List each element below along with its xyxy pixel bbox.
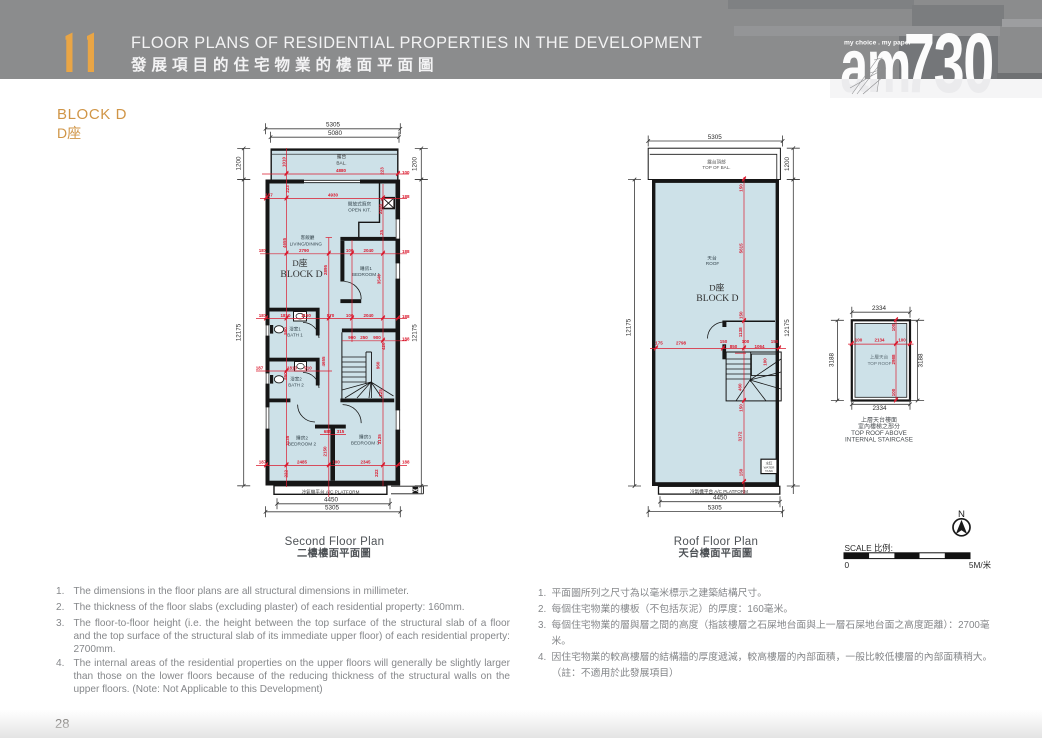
svg-text:25: 25 (379, 230, 384, 236)
svg-text:睡房1: 睡房1 (360, 265, 372, 272)
svg-text:150: 150 (771, 339, 779, 344)
svg-text:2150: 2150 (323, 446, 328, 457)
svg-text:3188: 3188 (918, 353, 925, 368)
svg-text:Second Floor Plan: Second Floor Plan (285, 536, 385, 548)
svg-text:175: 175 (655, 341, 663, 346)
svg-text:D座: D座 (292, 257, 307, 268)
svg-text:5615: 5615 (739, 243, 744, 254)
svg-text:BATH 2: BATH 2 (288, 382, 304, 387)
svg-text:100: 100 (742, 339, 750, 344)
svg-text:二樓樓面平面圖: 二樓樓面平面圖 (297, 546, 371, 559)
svg-text:187: 187 (259, 459, 267, 464)
svg-text:100: 100 (855, 338, 863, 343)
svg-text:2334: 2334 (872, 405, 887, 412)
svg-text:188: 188 (402, 336, 410, 341)
svg-text:TANK: TANK (765, 469, 774, 473)
svg-text:150: 150 (739, 184, 744, 192)
svg-text:150: 150 (739, 311, 744, 319)
svg-text:TOP ROOF: TOP ROOF (868, 361, 892, 366)
svg-text:12175: 12175 (626, 318, 633, 336)
svg-text:5305: 5305 (708, 504, 723, 511)
svg-text:150: 150 (739, 468, 744, 476)
svg-text:870: 870 (327, 313, 335, 318)
svg-text:222: 222 (283, 470, 288, 478)
svg-text:BEDROOM 2: BEDROOM 2 (288, 441, 317, 446)
svg-text:150: 150 (720, 339, 728, 344)
svg-text:4930: 4930 (328, 192, 339, 197)
svg-text:4450: 4450 (713, 494, 728, 501)
svg-text:2345: 2345 (360, 459, 371, 464)
svg-text:露台: 露台 (337, 153, 347, 160)
svg-text:1810: 1810 (280, 313, 291, 318)
svg-text:100: 100 (402, 170, 410, 175)
svg-text:1200: 1200 (784, 157, 791, 172)
svg-text:100: 100 (898, 338, 906, 343)
svg-text:2280: 2280 (378, 203, 383, 214)
svg-text:2798: 2798 (676, 341, 687, 346)
svg-text:5305: 5305 (325, 505, 340, 512)
svg-text:BAL.: BAL. (336, 160, 346, 165)
svg-text:INTERNAL STAIRCASE: INTERNAL STAIRCASE (845, 437, 913, 444)
svg-text:睡房3: 睡房3 (359, 433, 371, 440)
svg-text:1810: 1810 (287, 365, 298, 370)
svg-text:100: 100 (332, 459, 340, 464)
svg-text:850: 850 (730, 344, 738, 349)
svg-text:上層天台: 上層天台 (870, 354, 889, 361)
svg-text:188: 188 (402, 314, 410, 319)
svg-text:BLOCK D: BLOCK D (696, 293, 738, 304)
svg-text:上層天台樓面: 上層天台樓面 (861, 416, 897, 424)
svg-text:4880: 4880 (336, 168, 347, 173)
svg-text:460: 460 (738, 383, 743, 391)
svg-text:100: 100 (891, 388, 896, 396)
svg-text:ROOF: ROOF (706, 261, 720, 266)
svg-text:TOP OF BAL.: TOP OF BAL. (702, 165, 730, 170)
svg-text:2334: 2334 (872, 305, 887, 312)
svg-text:LIVING/DINING: LIVING/DINING (290, 241, 323, 246)
svg-text:2040: 2040 (363, 313, 374, 318)
svg-text:開放式廚房: 開放式廚房 (348, 201, 372, 208)
svg-text:2988: 2988 (891, 354, 896, 365)
svg-text:223: 223 (285, 185, 290, 193)
svg-text:3540: 3540 (376, 274, 381, 285)
svg-text:2485: 2485 (297, 459, 308, 464)
svg-text:685: 685 (324, 429, 332, 434)
svg-text:250: 250 (360, 335, 368, 340)
svg-text:1010: 1010 (282, 156, 287, 167)
svg-text:188: 188 (402, 249, 410, 254)
svg-text:3172: 3172 (738, 431, 743, 442)
svg-text:150: 150 (739, 404, 744, 412)
svg-text:1064: 1064 (754, 344, 765, 349)
svg-text:OPEN KIT.: OPEN KIT. (348, 208, 371, 213)
svg-text:12175: 12175 (784, 319, 791, 337)
svg-text:3135: 3135 (285, 435, 290, 446)
svg-text:4655: 4655 (321, 356, 326, 367)
svg-text:100: 100 (763, 358, 768, 366)
svg-text:4450: 4450 (324, 496, 339, 503)
svg-text:100: 100 (891, 323, 896, 331)
svg-text:5305: 5305 (326, 122, 341, 129)
svg-text:187: 187 (259, 248, 267, 253)
svg-text:4655: 4655 (282, 237, 287, 248)
svg-text:960: 960 (376, 361, 381, 369)
svg-text:188: 188 (402, 459, 410, 464)
svg-text:187: 187 (256, 365, 264, 370)
svg-text:5M/米: 5M/米 (969, 560, 992, 570)
svg-text:12175: 12175 (412, 324, 419, 342)
svg-text:100: 100 (346, 313, 354, 318)
svg-text:0: 0 (845, 560, 850, 570)
svg-text:睡房2: 睡房2 (296, 434, 308, 441)
svg-text:Roof Floor Plan: Roof Floor Plan (674, 536, 758, 548)
svg-text:SCALE 比例:: SCALE 比例: (845, 543, 893, 553)
svg-text:2040: 2040 (363, 248, 374, 253)
svg-text:550: 550 (283, 327, 288, 335)
svg-text:910: 910 (304, 365, 312, 370)
svg-text:100: 100 (346, 248, 354, 253)
svg-text:900: 900 (373, 335, 381, 340)
svg-text:D座: D座 (709, 282, 724, 293)
svg-text:1138: 1138 (738, 327, 743, 337)
svg-text:3188: 3188 (829, 353, 836, 368)
svg-text:850: 850 (283, 372, 288, 380)
svg-text:2790: 2790 (299, 248, 310, 253)
svg-text:BATH 1: BATH 1 (287, 332, 303, 337)
svg-text:2134: 2134 (874, 338, 885, 343)
svg-text:315: 315 (337, 429, 345, 434)
svg-text:420: 420 (381, 342, 386, 350)
svg-text:187: 187 (259, 313, 267, 318)
svg-text:1200: 1200 (235, 156, 242, 171)
svg-text:188: 188 (402, 194, 410, 199)
svg-text:BEDROOM 3: BEDROOM 3 (351, 440, 380, 445)
svg-text:冷氣機平台 A/C PLATFORM: 冷氣機平台 A/C PLATFORM (302, 488, 360, 495)
svg-text:222: 222 (374, 469, 379, 477)
svg-text:900: 900 (348, 335, 356, 340)
svg-text:2895: 2895 (323, 264, 328, 275)
svg-text:1150: 1150 (301, 313, 311, 318)
svg-text:5080: 5080 (328, 130, 343, 137)
svg-text:223: 223 (379, 167, 384, 175)
svg-text:1200: 1200 (412, 157, 419, 172)
svg-text:187: 187 (265, 193, 273, 198)
svg-text:12175: 12175 (235, 323, 242, 341)
svg-text:3135: 3135 (377, 434, 382, 445)
svg-text:天台樓面平面圖: 天台樓面平面圖 (678, 546, 752, 559)
svg-text:125: 125 (378, 389, 383, 397)
svg-text:客飯廳: 客飯廳 (301, 234, 315, 241)
svg-text:5305: 5305 (708, 134, 723, 141)
